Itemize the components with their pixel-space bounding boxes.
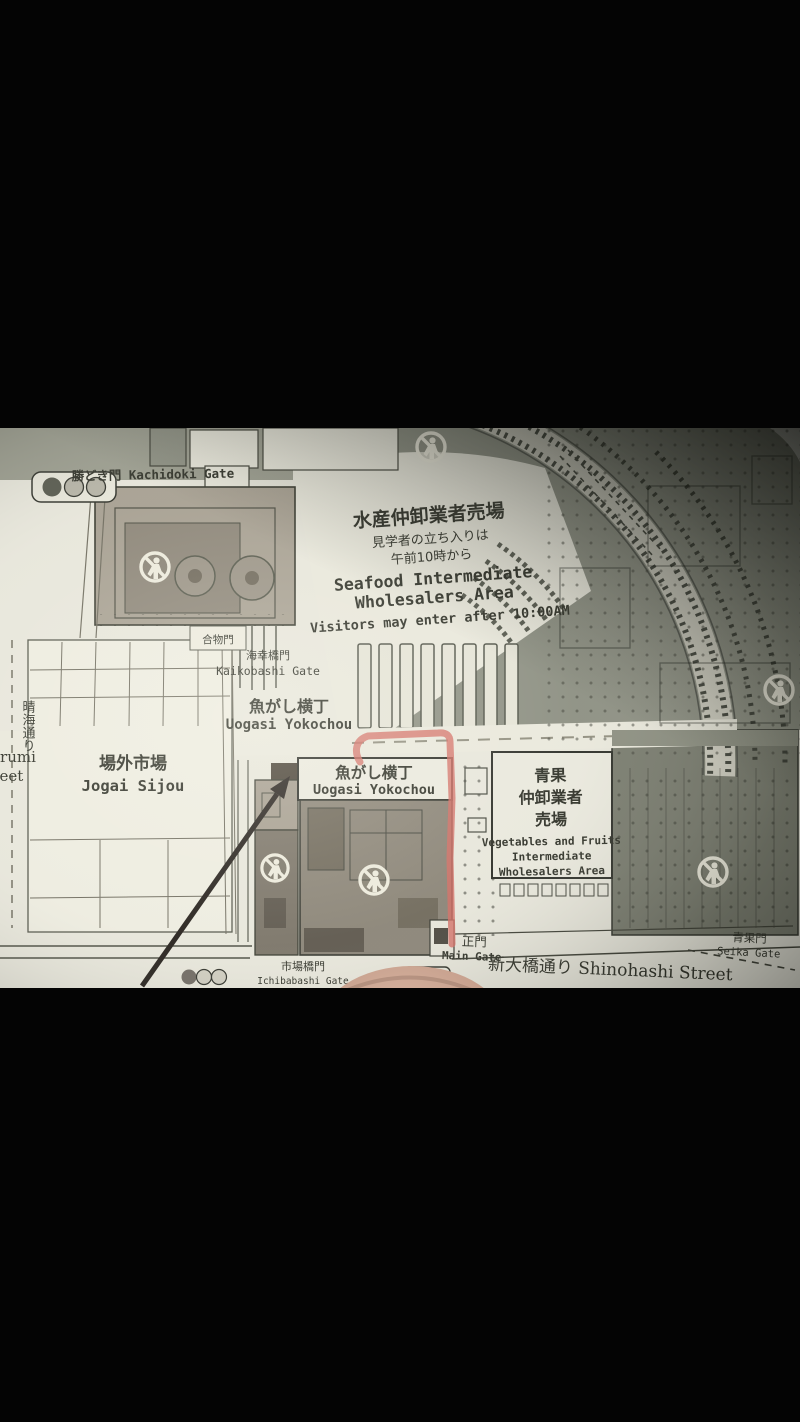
phone-screenshot: 勝どき門 Kachidoki Gate 水産仲卸業者売場 見学者の立ち入りは 午… xyxy=(0,0,800,1422)
map-photo[interactable]: 勝どき門 Kachidoki Gate 水産仲卸業者売場 見学者の立ち入りは 午… xyxy=(0,428,800,988)
letterbox-top xyxy=(0,0,800,428)
letterbox-bottom xyxy=(0,988,800,1422)
